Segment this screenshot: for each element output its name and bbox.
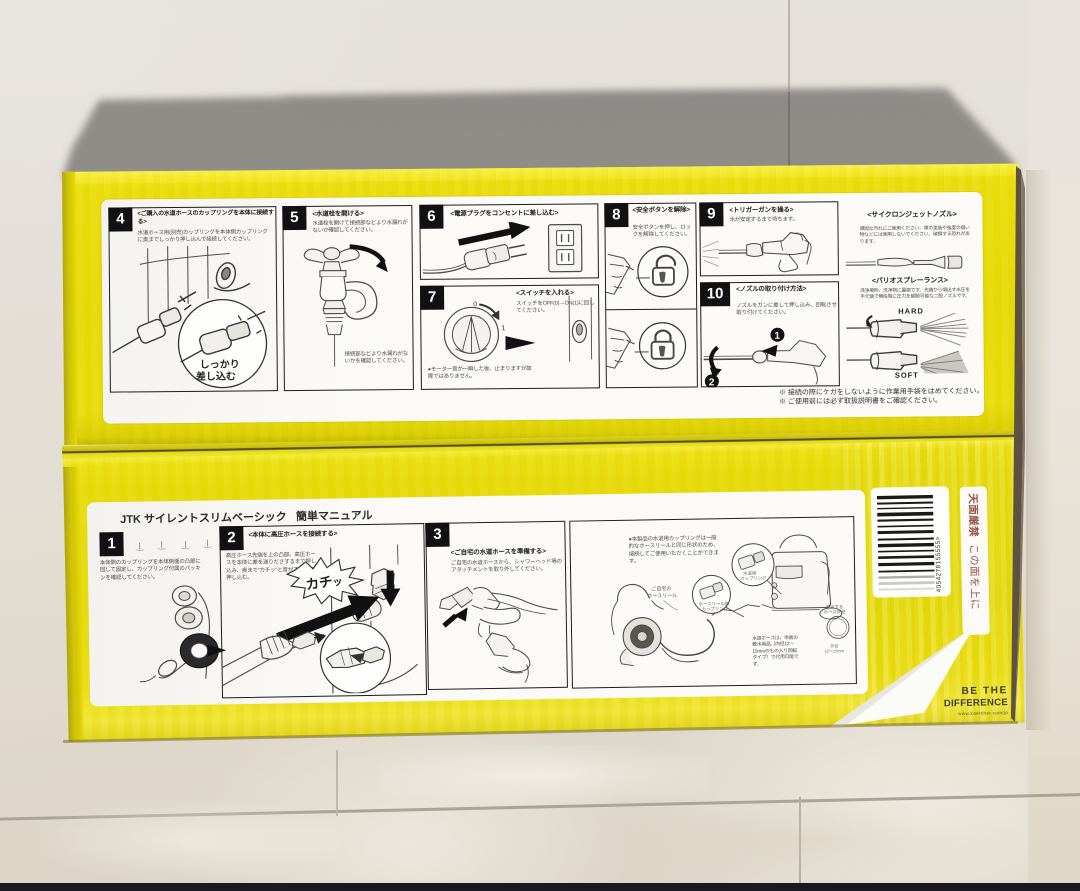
svg-text:2: 2: [709, 377, 715, 387]
svg-text:0: 0: [473, 301, 477, 308]
svg-text:しっかり: しっかり: [200, 358, 240, 370]
svg-text:差し込む: 差し込む: [196, 369, 236, 382]
svg-text:1: 1: [774, 331, 780, 342]
svg-text:1: 1: [501, 325, 505, 332]
